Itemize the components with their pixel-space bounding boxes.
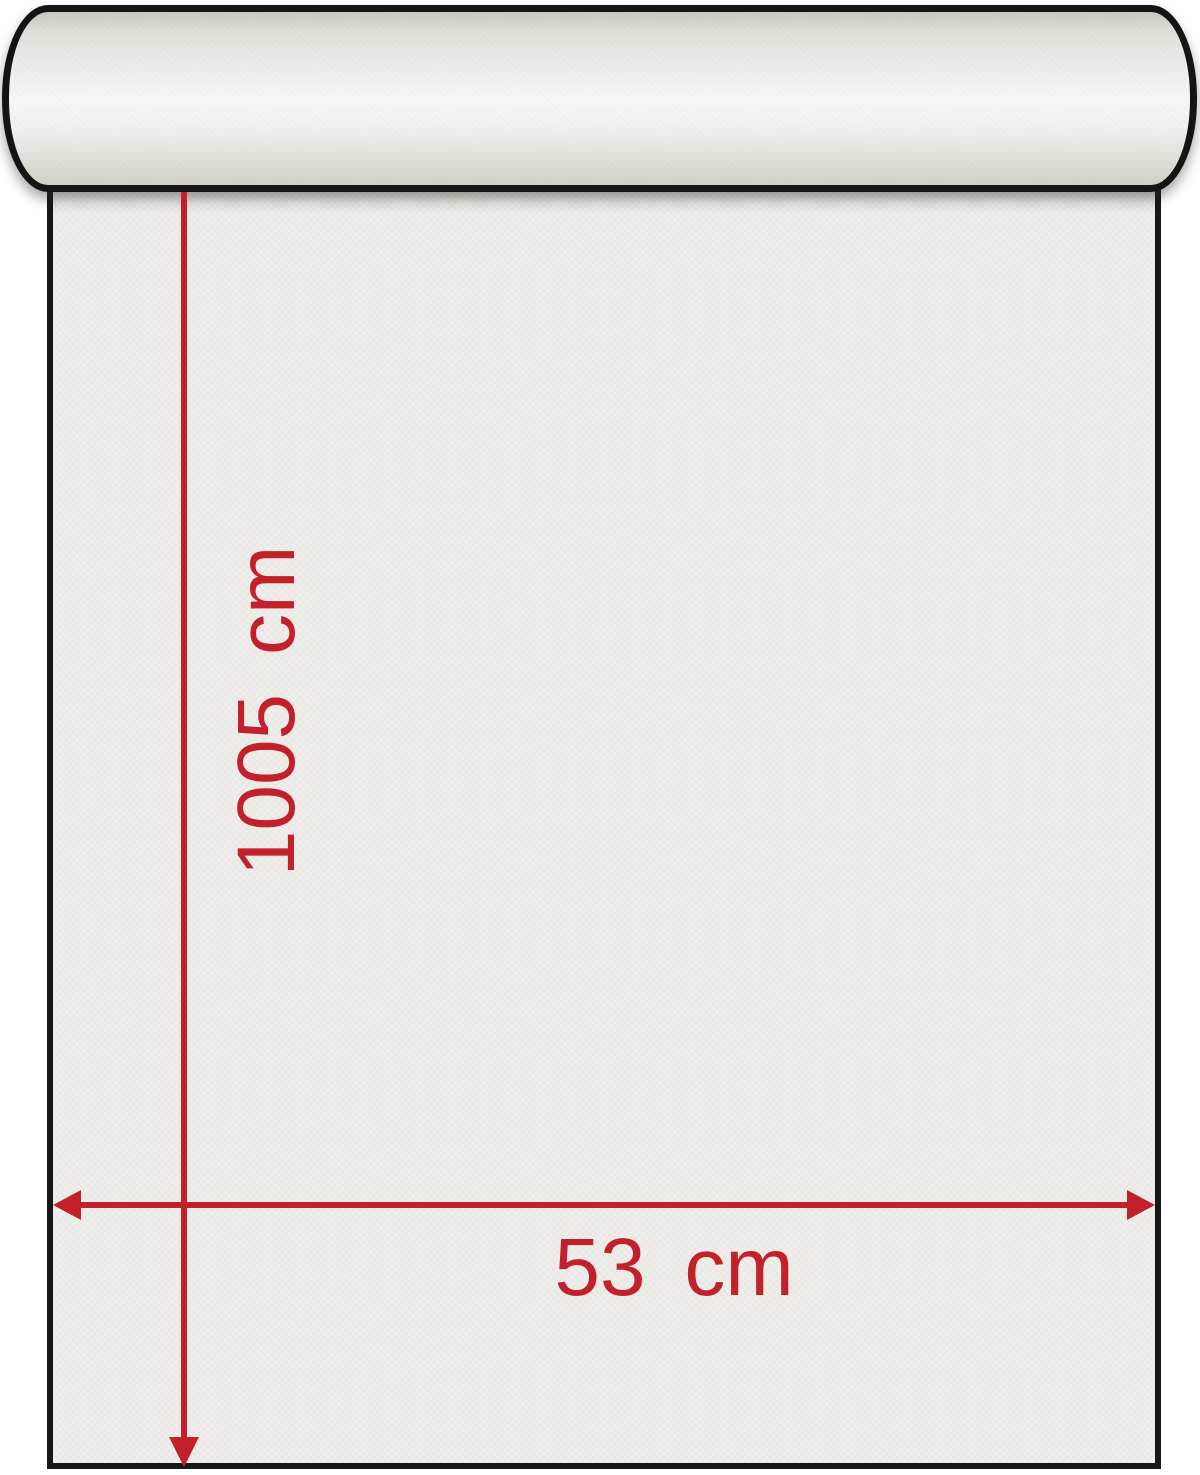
width-dimension-line bbox=[80, 1202, 1128, 1208]
arrow-left-icon bbox=[53, 1190, 81, 1220]
wallpaper-roll bbox=[2, 5, 1197, 192]
arrow-right-icon bbox=[1127, 1190, 1155, 1220]
product-dimension-diagram: 1005 cm 53 cm bbox=[0, 0, 1200, 1475]
height-dimension-line bbox=[181, 192, 187, 1438]
height-dimension-label: 1005 cm bbox=[226, 546, 308, 877]
width-dimension-label: 53 cm bbox=[554, 1227, 793, 1309]
arrow-down-icon bbox=[169, 1437, 199, 1467]
